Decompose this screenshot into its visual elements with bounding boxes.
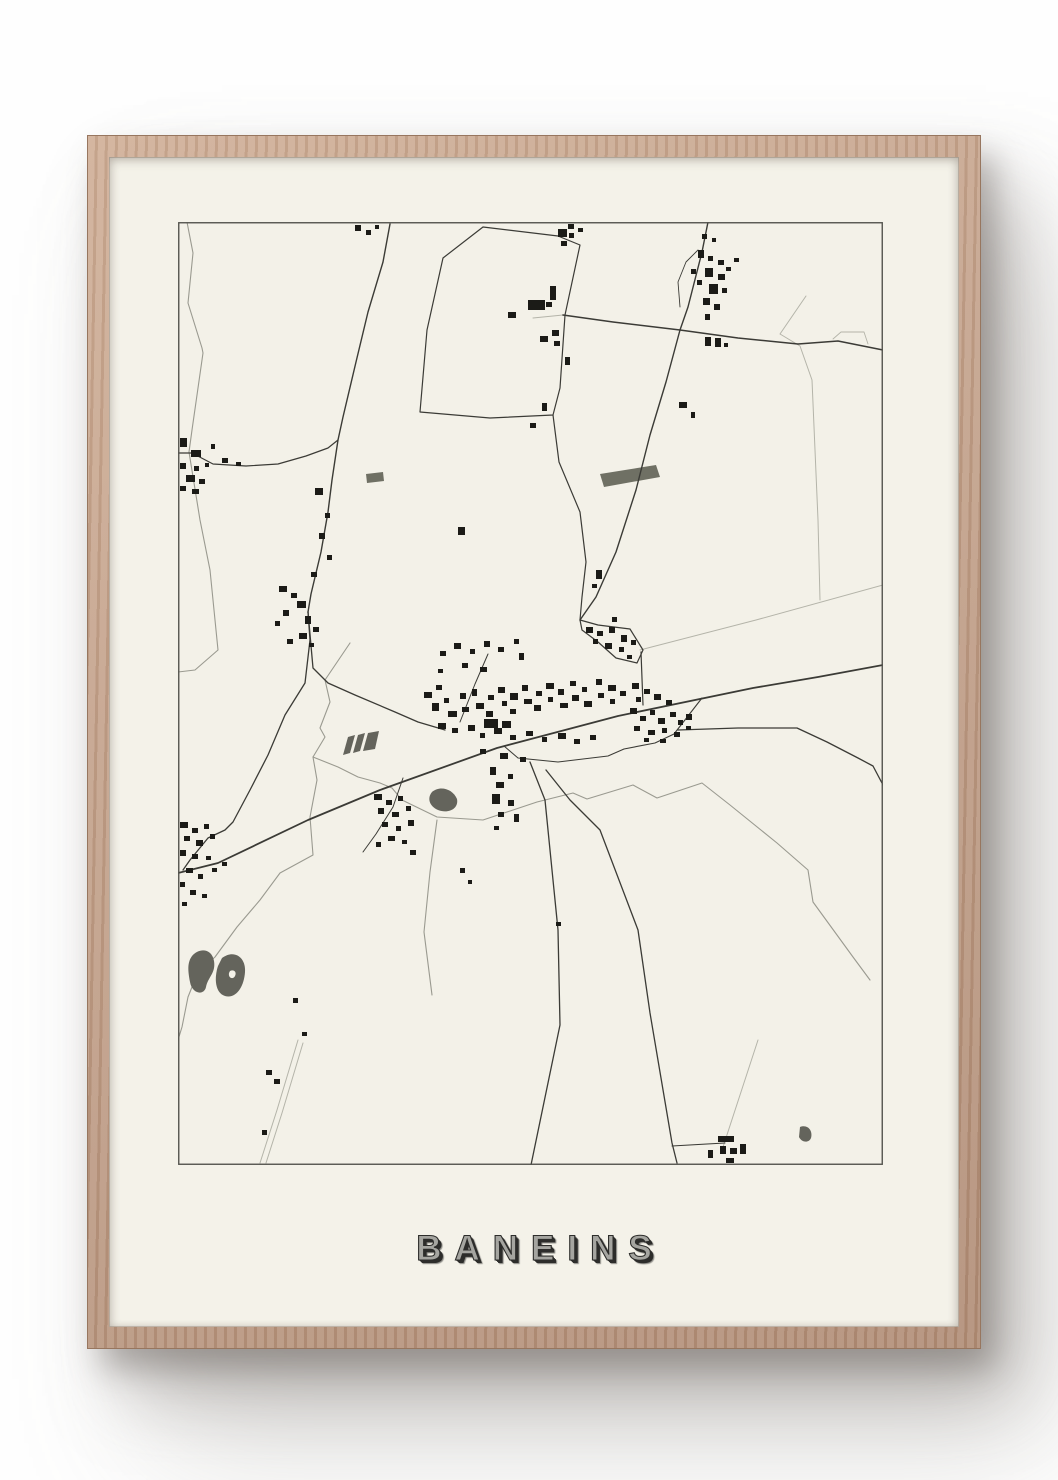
building bbox=[644, 689, 650, 694]
building bbox=[480, 749, 486, 754]
building bbox=[520, 757, 526, 762]
building bbox=[502, 701, 507, 706]
poster-title: BANEINS bbox=[109, 1229, 959, 1269]
building bbox=[484, 641, 490, 647]
building bbox=[448, 711, 457, 717]
building bbox=[500, 753, 508, 759]
building bbox=[199, 479, 205, 484]
building bbox=[619, 647, 624, 652]
pond bbox=[343, 735, 355, 755]
building bbox=[592, 584, 597, 588]
building bbox=[662, 728, 667, 733]
building bbox=[612, 617, 617, 622]
building bbox=[650, 710, 655, 715]
building bbox=[536, 691, 542, 696]
building bbox=[180, 438, 187, 447]
building bbox=[542, 737, 547, 742]
building bbox=[593, 639, 598, 644]
building bbox=[586, 627, 593, 633]
building bbox=[705, 314, 710, 320]
building bbox=[722, 288, 727, 293]
building bbox=[574, 739, 580, 744]
building bbox=[191, 450, 201, 457]
building bbox=[569, 233, 574, 238]
building bbox=[632, 683, 639, 689]
building bbox=[424, 692, 432, 698]
building bbox=[708, 1150, 713, 1158]
building bbox=[605, 643, 612, 649]
building bbox=[640, 716, 646, 721]
building bbox=[658, 718, 665, 724]
building bbox=[498, 647, 504, 652]
building bbox=[274, 1079, 280, 1084]
building bbox=[703, 298, 710, 305]
building bbox=[558, 689, 564, 695]
building bbox=[734, 258, 739, 262]
building bbox=[714, 304, 720, 310]
building bbox=[724, 343, 728, 347]
building bbox=[582, 687, 587, 692]
building bbox=[522, 685, 528, 691]
building bbox=[720, 1146, 726, 1154]
pond bbox=[799, 1126, 811, 1141]
building bbox=[546, 302, 552, 307]
building bbox=[212, 868, 217, 872]
title-text: BANEINS bbox=[403, 1229, 665, 1269]
building bbox=[472, 689, 477, 696]
building bbox=[552, 330, 559, 336]
building bbox=[291, 593, 297, 598]
building bbox=[206, 856, 211, 860]
building bbox=[498, 812, 504, 817]
building bbox=[548, 697, 553, 702]
building bbox=[712, 238, 716, 242]
building bbox=[490, 767, 496, 775]
building bbox=[432, 703, 439, 711]
building bbox=[631, 640, 636, 645]
building bbox=[410, 850, 416, 855]
building bbox=[378, 808, 384, 814]
building bbox=[508, 774, 513, 779]
building bbox=[496, 782, 504, 788]
building bbox=[510, 709, 516, 714]
building bbox=[708, 256, 713, 261]
building bbox=[514, 814, 519, 822]
building bbox=[510, 735, 516, 740]
building bbox=[186, 475, 195, 482]
building bbox=[578, 228, 583, 232]
building bbox=[283, 610, 289, 616]
building bbox=[452, 728, 458, 733]
field-patch bbox=[600, 465, 660, 487]
building bbox=[546, 683, 554, 689]
building bbox=[440, 651, 446, 656]
field-patch bbox=[366, 472, 384, 483]
building bbox=[609, 627, 615, 633]
building bbox=[325, 513, 330, 518]
building bbox=[644, 738, 649, 742]
map-area bbox=[178, 222, 883, 1165]
building bbox=[730, 1148, 737, 1154]
building bbox=[438, 723, 446, 729]
building bbox=[198, 874, 203, 879]
building bbox=[392, 812, 399, 817]
building bbox=[319, 533, 325, 539]
building bbox=[660, 739, 666, 743]
building bbox=[502, 721, 511, 728]
building bbox=[597, 631, 603, 636]
building bbox=[542, 403, 547, 411]
building bbox=[192, 489, 199, 494]
building bbox=[698, 250, 704, 258]
building bbox=[726, 267, 731, 271]
building bbox=[402, 840, 407, 844]
building bbox=[382, 822, 388, 827]
building bbox=[584, 701, 592, 707]
building bbox=[715, 338, 721, 347]
building bbox=[494, 826, 499, 830]
building bbox=[702, 234, 707, 239]
building bbox=[460, 693, 466, 699]
building bbox=[436, 685, 442, 690]
page-background: { "poster": { "title": "BANEINS" }, "col… bbox=[0, 0, 1058, 1480]
building bbox=[190, 890, 196, 895]
building bbox=[222, 862, 227, 866]
building bbox=[648, 730, 655, 735]
building bbox=[528, 300, 545, 310]
building bbox=[462, 663, 468, 668]
pond bbox=[363, 731, 379, 751]
building bbox=[476, 703, 484, 709]
building bbox=[554, 341, 560, 346]
building bbox=[726, 1158, 734, 1163]
building bbox=[740, 1144, 746, 1154]
building bbox=[386, 800, 392, 805]
building bbox=[565, 357, 570, 365]
building bbox=[598, 693, 604, 698]
building bbox=[396, 826, 401, 831]
building bbox=[666, 700, 672, 705]
building bbox=[375, 225, 379, 229]
building bbox=[596, 679, 602, 685]
building bbox=[279, 586, 287, 592]
building bbox=[488, 695, 494, 700]
building bbox=[462, 707, 469, 712]
building bbox=[697, 280, 702, 285]
building bbox=[498, 687, 505, 693]
building bbox=[608, 685, 616, 691]
building bbox=[526, 731, 533, 736]
building bbox=[540, 336, 548, 342]
building bbox=[192, 828, 198, 833]
building bbox=[674, 732, 680, 737]
building bbox=[610, 699, 615, 704]
building bbox=[492, 794, 500, 804]
building bbox=[202, 894, 207, 898]
building bbox=[524, 699, 532, 704]
map-canvas bbox=[178, 222, 883, 1165]
building bbox=[508, 312, 516, 318]
building bbox=[222, 458, 228, 463]
minor-roads-layer bbox=[260, 296, 883, 1163]
building bbox=[180, 882, 185, 887]
building bbox=[194, 466, 199, 471]
building bbox=[480, 733, 485, 738]
building bbox=[408, 820, 414, 826]
building bbox=[627, 655, 632, 659]
building bbox=[299, 633, 307, 639]
poster-mat: BANEINS bbox=[109, 157, 959, 1327]
building bbox=[192, 854, 198, 859]
building bbox=[406, 806, 411, 811]
building bbox=[313, 627, 319, 632]
building bbox=[444, 698, 449, 703]
building bbox=[556, 922, 561, 926]
building bbox=[376, 842, 381, 847]
roads-layer bbox=[178, 222, 883, 1165]
building bbox=[205, 463, 209, 467]
building bbox=[572, 695, 579, 701]
building bbox=[438, 669, 443, 673]
building bbox=[302, 1032, 307, 1036]
building bbox=[311, 572, 317, 577]
building bbox=[709, 284, 718, 294]
building bbox=[558, 229, 567, 237]
building bbox=[180, 463, 186, 469]
building bbox=[204, 824, 209, 829]
building bbox=[355, 225, 361, 231]
building bbox=[327, 555, 332, 560]
building bbox=[534, 705, 541, 711]
building bbox=[470, 649, 475, 654]
building bbox=[654, 694, 661, 700]
building bbox=[182, 902, 187, 906]
building bbox=[460, 868, 465, 873]
building bbox=[211, 444, 215, 449]
building bbox=[305, 616, 311, 624]
building bbox=[210, 834, 215, 839]
building bbox=[550, 286, 556, 300]
building bbox=[718, 1136, 734, 1142]
building bbox=[510, 693, 518, 700]
building bbox=[679, 402, 687, 408]
building bbox=[266, 1070, 272, 1075]
building bbox=[186, 868, 193, 873]
building bbox=[620, 691, 626, 696]
building bbox=[670, 712, 676, 717]
building bbox=[691, 269, 696, 274]
building bbox=[196, 840, 203, 846]
building bbox=[530, 423, 536, 428]
building bbox=[180, 850, 186, 856]
building bbox=[514, 639, 519, 644]
building bbox=[297, 601, 306, 608]
pond bbox=[429, 788, 457, 811]
building bbox=[494, 728, 502, 734]
pond bbox=[188, 950, 214, 992]
building bbox=[686, 714, 692, 720]
building bbox=[366, 230, 371, 235]
building bbox=[180, 486, 186, 491]
building bbox=[590, 735, 596, 740]
building bbox=[621, 635, 627, 642]
building bbox=[561, 241, 567, 246]
building bbox=[184, 836, 190, 841]
building bbox=[388, 836, 395, 841]
building bbox=[678, 720, 683, 725]
building bbox=[315, 488, 323, 495]
building bbox=[630, 708, 637, 714]
building bbox=[275, 621, 280, 626]
buildings-layer bbox=[180, 224, 746, 1163]
building bbox=[634, 726, 640, 731]
building bbox=[468, 725, 475, 731]
building bbox=[686, 726, 691, 730]
building bbox=[374, 794, 382, 800]
building bbox=[180, 822, 188, 828]
building bbox=[519, 653, 524, 660]
building bbox=[287, 639, 293, 644]
building bbox=[293, 998, 298, 1003]
rivers-layer bbox=[178, 222, 870, 1040]
pond bbox=[353, 733, 365, 753]
poster-frame: BANEINS bbox=[88, 136, 980, 1348]
building bbox=[468, 880, 472, 884]
building bbox=[570, 681, 576, 686]
building bbox=[262, 1130, 267, 1135]
map-border bbox=[179, 223, 883, 1165]
building bbox=[484, 719, 498, 728]
building bbox=[560, 703, 568, 708]
building bbox=[508, 800, 514, 806]
building bbox=[596, 570, 602, 579]
building bbox=[691, 412, 695, 418]
building bbox=[705, 268, 713, 277]
building bbox=[718, 274, 725, 280]
building bbox=[398, 796, 403, 801]
building bbox=[568, 224, 574, 229]
building bbox=[236, 462, 241, 466]
building bbox=[636, 697, 641, 702]
building bbox=[309, 643, 314, 647]
building bbox=[486, 711, 493, 717]
building bbox=[480, 667, 487, 672]
building bbox=[558, 733, 566, 739]
building bbox=[454, 643, 461, 649]
building bbox=[458, 527, 465, 535]
building bbox=[718, 260, 724, 265]
building bbox=[705, 337, 711, 346]
